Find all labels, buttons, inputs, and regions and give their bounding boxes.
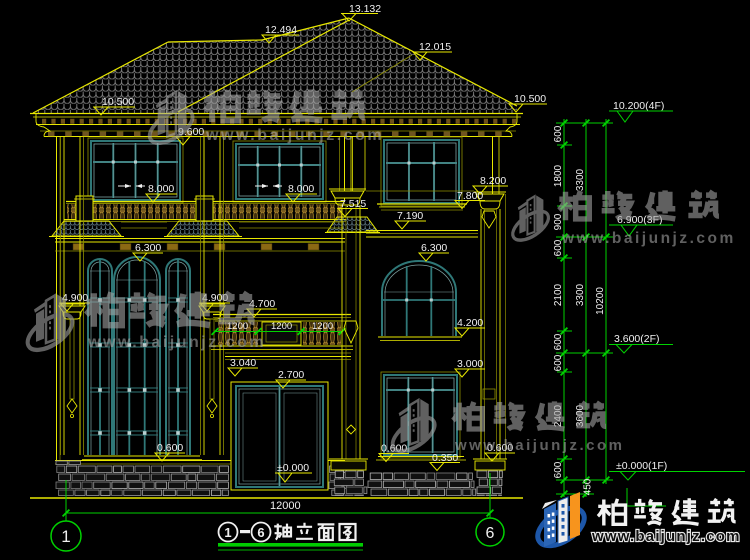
- svg-text:10.200(4F): 10.200(4F): [613, 100, 664, 112]
- svg-text:6.300: 6.300: [421, 242, 447, 254]
- svg-text:600: 600: [553, 333, 564, 350]
- svg-text:2100: 2100: [553, 283, 564, 306]
- svg-text:600: 600: [553, 125, 564, 142]
- svg-text:10.500: 10.500: [102, 96, 134, 108]
- svg-text:www.baijunjz.com: www.baijunjz.com: [561, 230, 736, 247]
- svg-text:1: 1: [61, 527, 70, 546]
- svg-text:8.000: 8.000: [288, 183, 314, 195]
- svg-text:±0.000(1F): ±0.000(1F): [616, 460, 667, 472]
- svg-text:12000: 12000: [270, 500, 301, 512]
- svg-text:10200: 10200: [595, 287, 606, 315]
- svg-text:12.015: 12.015: [419, 41, 451, 53]
- svg-text:6: 6: [486, 525, 495, 542]
- svg-text:8.000: 8.000: [148, 183, 174, 195]
- svg-text:1200: 1200: [271, 321, 292, 332]
- svg-text:6.300: 6.300: [135, 242, 161, 254]
- svg-text:3.000: 3.000: [457, 358, 483, 370]
- svg-text:www.baijunjz.com: www.baijunjz.com: [591, 528, 741, 545]
- svg-text:1800: 1800: [553, 164, 564, 187]
- svg-text:2.700: 2.700: [278, 369, 304, 381]
- svg-text:1: 1: [224, 525, 231, 540]
- svg-text:www.baijunjz.com: www.baijunjz.com: [205, 127, 384, 144]
- svg-text:±0.000: ±0.000: [277, 462, 309, 474]
- svg-text:3.600(2F): 3.600(2F): [614, 333, 660, 345]
- svg-text:12.494: 12.494: [265, 24, 297, 36]
- svg-text:8.200: 8.200: [480, 175, 506, 187]
- svg-text:4.200: 4.200: [457, 317, 483, 329]
- svg-text:1200: 1200: [312, 321, 333, 332]
- svg-text:3300: 3300: [575, 168, 586, 191]
- svg-text:www.baijunjz.com: www.baijunjz.com: [454, 437, 624, 454]
- svg-text:900: 900: [553, 213, 564, 230]
- svg-text:10.500: 10.500: [514, 93, 546, 105]
- svg-text:600: 600: [553, 354, 564, 371]
- svg-text:www.baijunjz.com: www.baijunjz.com: [87, 334, 266, 351]
- svg-text:0.600: 0.600: [157, 442, 183, 454]
- svg-text:3300: 3300: [575, 283, 586, 306]
- svg-text:450: 450: [583, 478, 594, 495]
- svg-text:600: 600: [553, 461, 564, 478]
- svg-text:6: 6: [257, 525, 264, 540]
- svg-text:7.190: 7.190: [397, 210, 423, 222]
- svg-text:3.040: 3.040: [230, 357, 256, 369]
